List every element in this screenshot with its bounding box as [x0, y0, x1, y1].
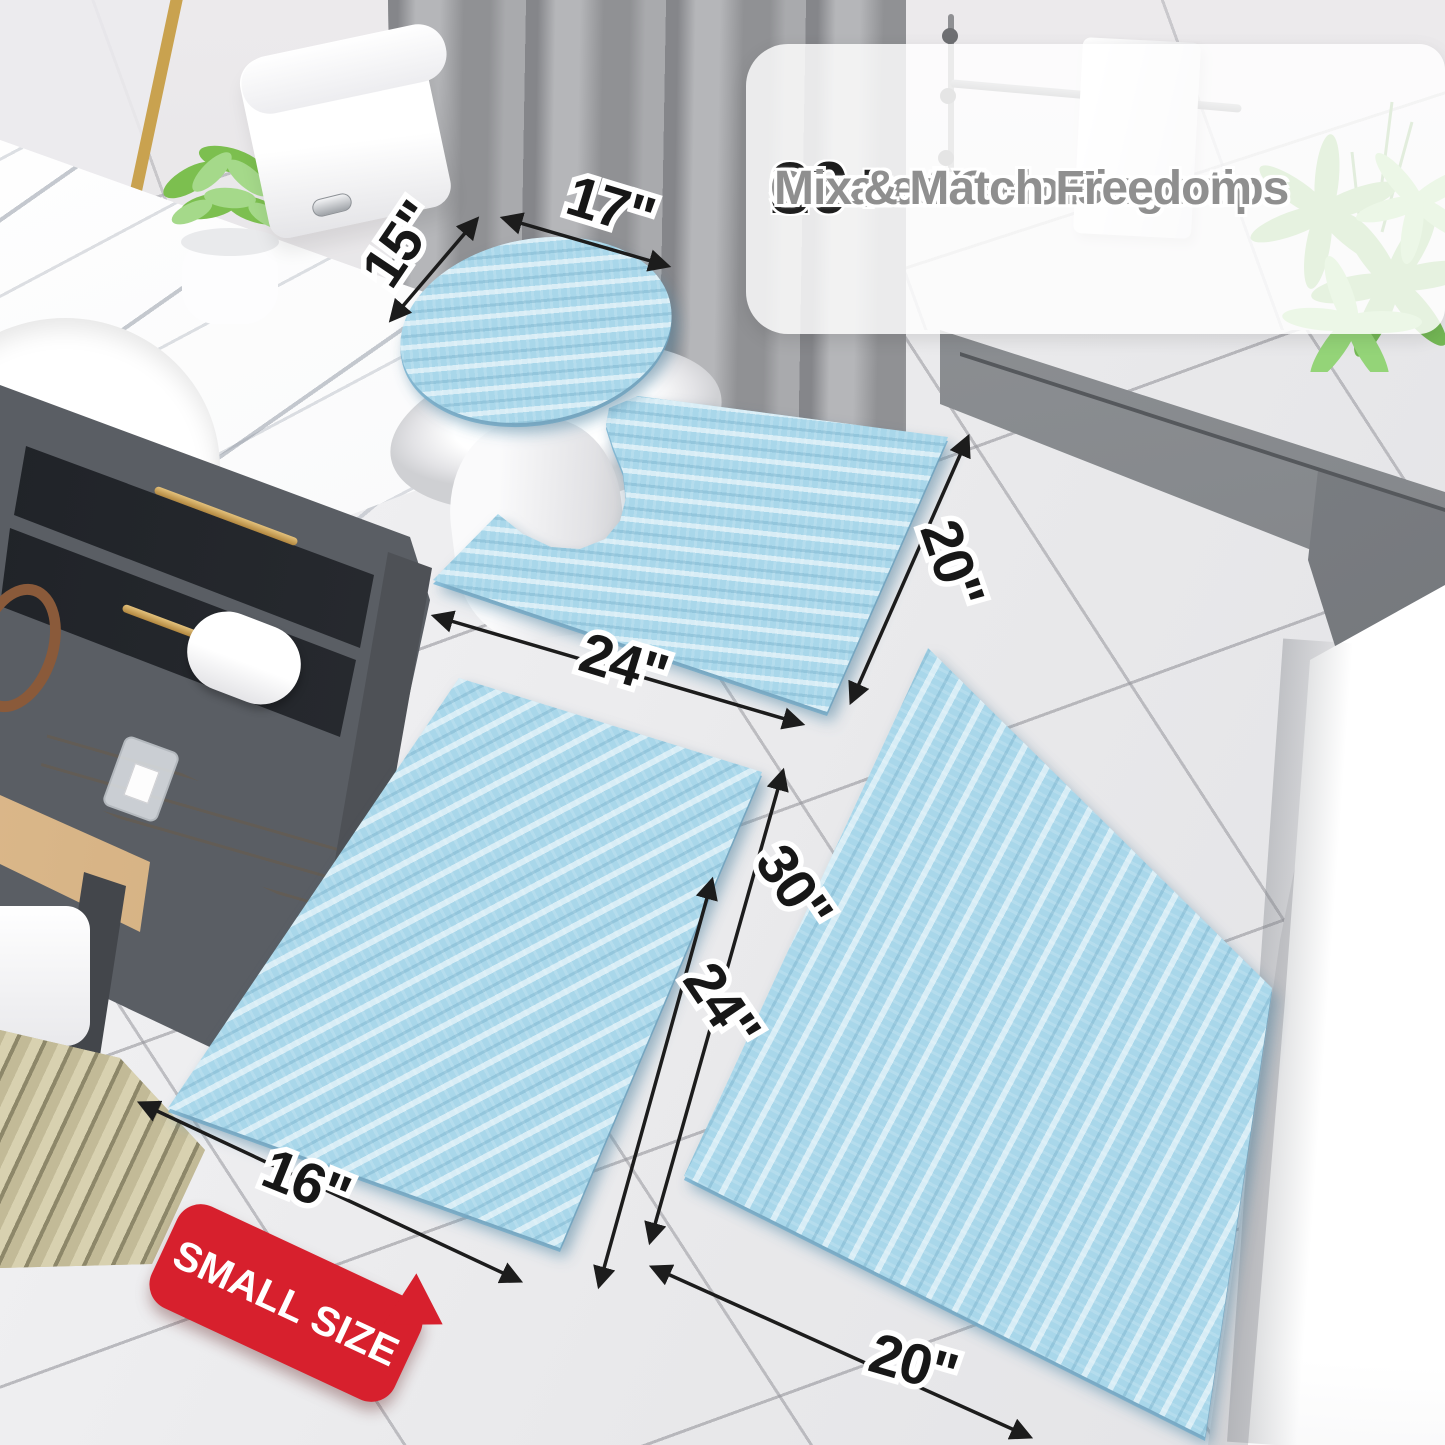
- feature-text: Mix & Match Freedom: [774, 161, 1251, 216]
- product-image-bath-rug-set: 15" 17" 24" 20" 30" 24" 16" 20" ✓ 20+ Si…: [0, 0, 1445, 1445]
- feature-callout-box: ✓ 20+ Sizes at Your Fingertips ✓ 30+ Cur…: [746, 44, 1445, 334]
